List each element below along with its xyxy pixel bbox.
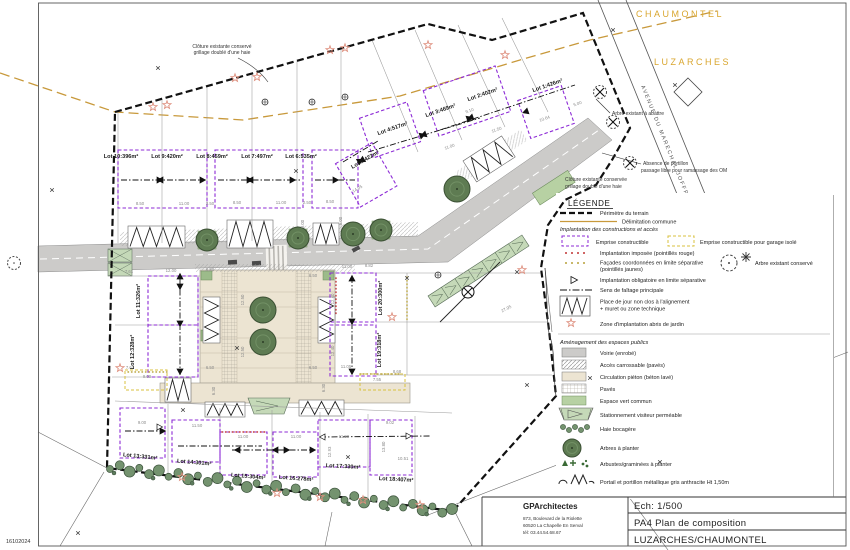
firm-address-line1: 873, Boulevard de la Riolette [523, 516, 582, 521]
hedge-bush [124, 466, 135, 477]
dimension-label: 8.68 [393, 369, 402, 374]
hedge-bush [212, 473, 223, 484]
paved-strip [222, 271, 237, 399]
lot-label: Lot 8:459m² [196, 153, 228, 160]
site-plan-drawing: AVENUE DU MARECHAL JOFFRE [0, 0, 850, 550]
hedge-swatch-bush [578, 427, 583, 432]
hedge-bush [151, 476, 155, 480]
legend-label: Emprise constructible pour garage isolé [700, 240, 797, 246]
bins-note-line2: passage libre pour ramassage des OM [641, 168, 727, 174]
legend-label: Périmètre du terrain [600, 211, 649, 217]
legend-label: Délimitation commune [622, 220, 676, 226]
dimension-label: 6.50 [206, 365, 215, 370]
date-stamp: 16102024 [6, 539, 30, 545]
lot-label: Lot 9:420m² [151, 153, 183, 160]
hedge-bush [190, 481, 194, 485]
hedge-bush [388, 496, 399, 507]
north-paved-strip [195, 264, 355, 272]
dimension-label: 2.50 [303, 200, 312, 205]
dimension-label: 6.50 [309, 273, 318, 278]
dimension-label: 12.00 [166, 268, 177, 273]
lot-label: Lot 6:535m² [285, 153, 317, 160]
dimension-label: 12.93 [327, 446, 332, 457]
commune-north-label: CHAUMONTEL [636, 9, 724, 19]
hedge-bush [447, 504, 458, 515]
legend-label: Pavés [600, 387, 616, 393]
dimension-label: 8.50 [233, 200, 242, 205]
legend-label: Arbre existant conservé [755, 261, 813, 267]
day-room-structure [203, 297, 220, 343]
acces-swatch [562, 360, 586, 369]
hedge-bush [291, 484, 300, 493]
dimension-label: 2.50 [206, 201, 215, 206]
dimension-label: 8.82 [365, 263, 374, 268]
hedge-bush [307, 497, 311, 501]
day-room-structure [313, 223, 339, 245]
legend-label: Portail et portillon métallique gris ant… [600, 480, 729, 486]
legend-item-haie: Haie bocagère [600, 427, 636, 433]
dimension-label: 6.30 [211, 386, 216, 395]
hedge-bush [241, 482, 252, 493]
plan-sheet: AVENUE DU MARECHAL JOFFRE [0, 0, 850, 550]
hedge-bush [112, 471, 116, 475]
dimension-label: 12.50 [240, 294, 245, 305]
legend-label: Stationnement visiteur perméable [600, 413, 682, 419]
hedge-bush [350, 492, 359, 501]
paves-swatch [562, 384, 586, 393]
dimension-label: 11.00 [276, 200, 287, 205]
pieton-swatch [562, 372, 586, 381]
lot-label: Lot 12:328m² [129, 335, 136, 370]
dimension-label: 9.02 [386, 420, 395, 425]
project-name: LUZARCHES/CHAUMONTEL [634, 535, 767, 546]
dimension-label: 8.50 [136, 201, 145, 206]
hedge-bush [268, 492, 272, 496]
tree-fell-note: Arbre existant à abattre [612, 111, 664, 117]
hedge-bush [329, 488, 340, 499]
hedge-bush [282, 489, 289, 496]
hedge-bush [438, 508, 447, 517]
dimension-label: 5.00 [300, 219, 305, 228]
hedge-bush [429, 503, 436, 510]
legend-section-espaces: Aménagement des espaces publics [559, 340, 649, 346]
dimension-label: 11.00 [291, 434, 302, 439]
stationnement-swatch [559, 408, 593, 420]
hedge-bush [370, 495, 377, 502]
fence-note-ne-line1: Clôture existante conservée [565, 177, 627, 183]
legend-label: Sens de faîtage principale [600, 288, 664, 294]
lot-label: Lot 10:396m² [104, 153, 139, 160]
hedge-bush [165, 473, 172, 480]
hedge-swatch-bush [584, 424, 589, 429]
dimension-label: 11.50 [192, 423, 203, 428]
hedge-bush [312, 488, 319, 495]
dimension-label: 11.05 [341, 364, 352, 369]
hedge-bush [229, 486, 233, 490]
day-room-structure [227, 220, 273, 248]
hedge-bush [115, 461, 124, 470]
hedge-swatch-bush [566, 427, 571, 432]
asterisk-icon [741, 252, 751, 262]
dimension-label: 12.50 [240, 346, 245, 357]
dimension-label: 6.30 [321, 383, 326, 392]
voirie-swatch [562, 348, 586, 357]
dimension-label: 11.00 [238, 434, 249, 439]
hedge-bush [386, 507, 390, 511]
fence-note-nw-line2: grillage doublé d'une haie [194, 50, 251, 56]
hedge-bush [194, 472, 201, 479]
dimension-label: 10.51 [398, 456, 409, 461]
legend-label: Implantation obligatoire en limite sépar… [600, 278, 706, 284]
day-room-structure [165, 378, 191, 402]
legend-label: Haie bocagère [600, 427, 636, 433]
dimension-label: 12.40 [330, 345, 335, 356]
firm-phone: tél: 03.44.54.68.67 [523, 530, 562, 535]
bins-note-line1: Absence de portillon [643, 161, 689, 167]
dimension-label: 5.00 [338, 216, 343, 225]
dimension-label: 8.50 [326, 199, 335, 204]
espace-vert-swatch [562, 396, 586, 405]
dimension-label: 9.00 [143, 374, 152, 379]
legend-section-implantation: Implantation des constructions et accès [560, 227, 658, 233]
firm-address-line2: 60520 La Chapelle En Serval [523, 523, 583, 528]
hedge-bush [271, 480, 282, 491]
hedge-bush [153, 465, 164, 476]
firm-name: GPArchitectes [523, 502, 578, 511]
lot-label: Lot 19:318m² [376, 333, 383, 368]
legend-label: Circulation piéton (béton lavé) [600, 375, 673, 381]
dimension-label: 11.00 [342, 264, 353, 269]
legend-title: LÉGENDE [568, 199, 610, 208]
hedge-swatch-bush [560, 424, 565, 429]
dimension-label: 7.61 [125, 269, 134, 274]
hedge-bush [400, 504, 407, 511]
dimension-label: 6.50 [206, 267, 215, 272]
lot-label: Lot 20:300m² [377, 281, 384, 316]
legend-label: Espace vert commun [600, 399, 652, 405]
dimension-label: 9.00 [138, 420, 147, 425]
legend-background [556, 193, 834, 499]
legend-label: Zone d'implantation abris de jardin [600, 322, 684, 328]
lot-label: Lot 11:326m² [135, 284, 142, 318]
hedge-swatch-bush [572, 424, 577, 429]
scale-label: Ech: 1/500 [634, 501, 682, 512]
legend-label: Façades coordonnées en limite séparative [600, 261, 703, 267]
paved-strip [296, 271, 311, 399]
legend-label: Place de jour non clos à l'alignement [600, 300, 690, 306]
dimension-label: 7.55 [373, 377, 382, 382]
day-room-structure [128, 226, 185, 248]
legend-label: Emprise constructible [596, 240, 649, 246]
hedge-bush [203, 477, 212, 486]
legend-label: Arbres à planter [600, 446, 639, 452]
legend-label: Implantation imposée (pointillés rouge) [600, 251, 695, 257]
sheet-title: PA4 Plan de composition [634, 518, 746, 529]
legend-label: Accès carrossable (pavés) [600, 363, 665, 369]
legend-label: Voirie (enrobé) [600, 351, 636, 357]
dimension-label: 11.99 [339, 434, 350, 439]
legend-label: Arbustes/graminées à planter [600, 462, 672, 468]
fence-note-ne-line2: grillage doublé d'une haie [565, 184, 622, 190]
legend-item-abris: Zone d'implantation abris de jardin [600, 322, 684, 328]
legend-label: (pointillés jaunes) [600, 267, 643, 273]
hedge-bush [425, 512, 429, 516]
lot-label: Lot 7:497m² [241, 153, 273, 160]
hedge-bush [347, 502, 351, 506]
dimension-label: 13.80 [381, 441, 386, 452]
hedge-bush [136, 464, 143, 471]
dimension-label: 12.40 [330, 293, 335, 304]
commune-south-label: LUZARCHES [654, 57, 731, 67]
dimension-label: 11.00 [179, 201, 190, 206]
dimension-label: 6.50 [309, 365, 318, 370]
legend-label: + muret ou zone technique [600, 307, 665, 313]
